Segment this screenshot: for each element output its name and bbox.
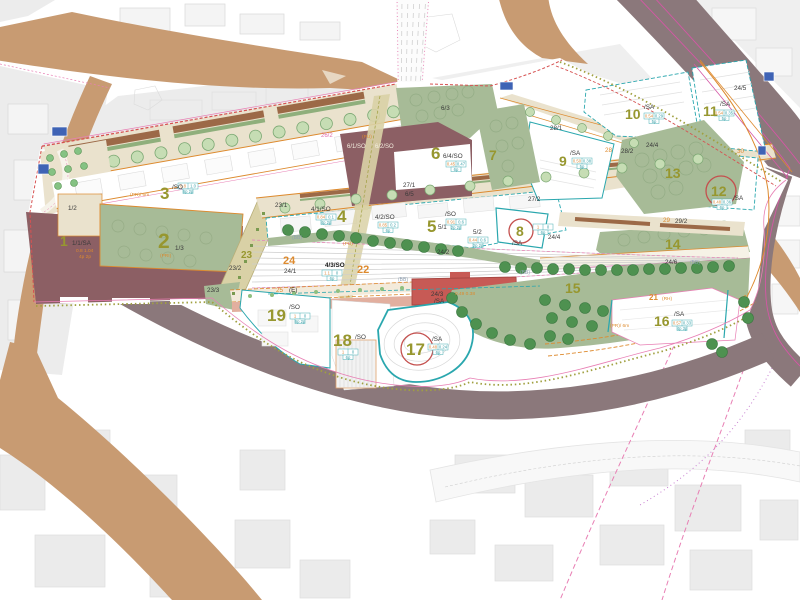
map-label: 4/1/SO (311, 206, 331, 213)
map-label: 27/2 (528, 196, 541, 203)
tree-icon (580, 265, 591, 276)
svg-text:0.50: 0.50 (573, 159, 582, 164)
map-label: 30 (737, 148, 745, 155)
svg-text:4p 2p: 4p 2p (321, 220, 332, 225)
map-label: 26/2 (321, 133, 333, 139)
tree-icon (75, 148, 82, 155)
tree-icon (548, 264, 559, 275)
tree-icon (547, 313, 558, 324)
map-label: (PR)/ 6m (130, 192, 149, 198)
tree-icon (49, 169, 56, 176)
tree-icon (628, 265, 639, 276)
map-label: 4 (337, 207, 347, 226)
tree-icon (503, 176, 513, 186)
svg-text:0.2: 0.2 (390, 223, 396, 228)
map-label: 4p 2p (79, 254, 91, 260)
tree-icon (545, 331, 556, 342)
map-label: (BB) (690, 260, 700, 266)
tree-icon (317, 229, 328, 240)
tree-icon (540, 295, 551, 306)
map-label: 8 (516, 223, 524, 239)
map-label: (PU) (362, 134, 372, 140)
tree-icon (270, 293, 274, 297)
tree-icon (707, 339, 718, 350)
svg-text:6p: 6p (330, 276, 335, 281)
svg-text:0.33: 0.33 (683, 321, 692, 326)
map-label: 13 (665, 165, 681, 181)
svg-text:0.48: 0.48 (713, 200, 722, 205)
map-label: /SO (289, 304, 300, 311)
map-label: 4/2/SO (375, 214, 395, 221)
tree-icon (525, 339, 536, 350)
tree-icon (283, 225, 294, 236)
parcel-2-green (100, 204, 243, 272)
tree-icon (630, 139, 639, 148)
map-label: 1/2 (68, 205, 77, 212)
map-label: 24 (283, 255, 296, 267)
map-label: 24/2 (437, 249, 450, 256)
svg-text:6p: 6p (436, 350, 441, 355)
map-label: (PR)/ 6m (610, 323, 629, 329)
tree-icon (655, 159, 665, 169)
map-label: (BB) (520, 270, 530, 276)
map-label: /SA (733, 195, 744, 202)
map-label: /SA (720, 101, 731, 108)
svg-text:2p 2p: 2p 2p (451, 225, 462, 230)
svg-text:0.6: 0.6 (458, 220, 464, 225)
svg-text:0.85: 0.85 (379, 223, 388, 228)
tree-icon (232, 292, 235, 295)
map-label: 22 (357, 264, 369, 276)
tree-icon (400, 286, 404, 290)
map-label: /SO (355, 334, 366, 341)
svg-text:0.38: 0.38 (583, 159, 592, 164)
tree-icon (238, 276, 241, 279)
svg-text:6p: 6p (541, 230, 546, 235)
svg-text:0.36: 0.36 (723, 200, 732, 205)
map-label: 18 (333, 331, 352, 350)
map-label: (RH) (662, 296, 673, 302)
tree-icon (336, 289, 340, 293)
tree-icon (47, 155, 54, 162)
map-label: 27/1 (403, 182, 416, 189)
map-label: (PU) (343, 241, 353, 247)
tree-icon (419, 242, 430, 253)
svg-text:0.47: 0.47 (457, 162, 466, 167)
svg-text:0.44: 0.44 (469, 238, 478, 243)
tree-icon (425, 185, 435, 195)
tree-icon (256, 228, 259, 231)
map-label: 0.49 0.38 (455, 291, 475, 297)
tree-icon (61, 151, 68, 158)
map-label: 29 (663, 217, 671, 224)
tree-icon (81, 163, 88, 170)
map-label: 24/4 (548, 234, 561, 241)
map-label: /SA (432, 336, 443, 343)
map-label: 6/3 (441, 105, 450, 112)
tree-icon (358, 288, 362, 292)
tree-icon (587, 321, 598, 332)
map-label: 10 (625, 106, 641, 122)
tree-icon (612, 265, 623, 276)
master-plan-map: 0.81.06p 2p0.840.14p 2p0.850.26p0.910.62… (0, 0, 800, 600)
map-label: 25 (276, 287, 284, 294)
tree-icon (580, 303, 591, 314)
map-label: 1/1/SA (72, 240, 92, 247)
tree-icon (262, 212, 265, 215)
tree-icon (693, 154, 703, 164)
map-label: (E) (289, 287, 297, 294)
map-label: 24/6 (665, 259, 678, 266)
map-label: 24/5 (734, 85, 747, 92)
tree-icon (500, 262, 511, 273)
tree-icon (65, 166, 72, 173)
svg-text:0.48: 0.48 (429, 345, 438, 350)
map-label: 28 (605, 147, 613, 154)
tree-icon (314, 290, 318, 294)
svg-text:6p: 6p (720, 205, 725, 210)
tree-icon (579, 168, 589, 178)
svg-text:6p: 6p (386, 228, 391, 233)
svg-text:6p 2p: 6p 2p (183, 189, 194, 194)
tree-icon (465, 181, 475, 191)
svg-text:6p: 6p (454, 167, 459, 172)
svg-text:0.45: 0.45 (447, 162, 456, 167)
map-label: 17 (406, 340, 425, 359)
map-label: 28/1 (550, 125, 563, 132)
map-label: 24/3 (431, 291, 444, 298)
map-label: 14 (665, 236, 681, 252)
map-label: 24/1 (284, 268, 297, 275)
tree-icon (55, 183, 62, 190)
tree-icon (708, 262, 719, 273)
tree-icon (71, 180, 78, 187)
svg-text:4p 3p: 4p 3p (677, 326, 688, 331)
map-label: 6/4/SO (443, 153, 463, 160)
tree-icon (250, 244, 253, 247)
svg-text:2p 2p: 2p 2p (473, 243, 484, 248)
map-label: 23/3 (207, 287, 220, 294)
map-label: 2 (158, 230, 170, 253)
tree-icon (567, 317, 578, 328)
svg-text:0.6: 0.6 (480, 238, 486, 243)
tree-icon (617, 163, 627, 173)
svg-text:0.1: 0.1 (328, 215, 334, 220)
map-label: /SO (445, 211, 456, 218)
tree-icon (351, 194, 361, 204)
svg-text:1.1: 1.1 (324, 271, 330, 276)
map-label: 6/1/SO (347, 144, 366, 150)
tree-icon (380, 287, 384, 291)
tree-icon (717, 347, 728, 358)
map-label: 6 (431, 144, 440, 163)
svg-text:0.57: 0.57 (673, 321, 682, 326)
tree-icon (368, 236, 379, 247)
svg-text:5p: 5p (580, 164, 585, 169)
map-label: 15 (565, 280, 581, 296)
map-label: 23/2 (229, 265, 242, 272)
tree-icon (604, 132, 613, 141)
map-label: 3 (160, 184, 169, 203)
tree-icon (743, 313, 754, 324)
map-label: 0.8 1.04 (76, 248, 94, 254)
map-label: 5 (427, 217, 436, 236)
map-label: 7 (489, 147, 497, 163)
tree-icon (560, 300, 571, 311)
map-label: /SO (172, 184, 183, 191)
map-label: (BB) (292, 235, 302, 241)
tree-icon (564, 264, 575, 275)
svg-text:5p: 5p (652, 119, 657, 124)
map-label: 24/4 (646, 142, 659, 149)
svg-text:0.91: 0.91 (447, 220, 456, 225)
tree-icon (471, 319, 482, 330)
tree-icon (596, 265, 607, 276)
svg-text:1.0: 1.0 (190, 184, 196, 189)
map-label: 9 (559, 153, 567, 169)
tree-icon (598, 306, 609, 317)
map-label: (BB) (398, 277, 408, 283)
tree-icon (334, 231, 345, 242)
courtyard-1-2 (58, 194, 102, 236)
svg-text:0.35: 0.35 (725, 111, 734, 116)
svg-text:6p: 6p (346, 355, 351, 360)
map-label: 29/2 (675, 218, 688, 225)
svg-text:0.84: 0.84 (317, 215, 326, 220)
map-label: 23 (241, 250, 253, 261)
tree-icon (387, 190, 397, 200)
tree-icon (552, 116, 561, 125)
tree-icon (724, 261, 735, 272)
map-label: 1 (60, 233, 68, 249)
tree-icon (541, 172, 551, 182)
map-label: /SA (644, 104, 655, 111)
tree-icon (402, 240, 413, 251)
tree-icon (532, 263, 543, 274)
tree-icon (563, 334, 574, 345)
map-label: 4/3/SO (325, 262, 345, 269)
tree-icon (739, 297, 750, 308)
tree-icon (487, 328, 498, 339)
map-label: 11 (703, 103, 718, 119)
tree-icon (453, 246, 464, 257)
map-label: /SA (674, 311, 685, 318)
svg-text:0.54: 0.54 (645, 114, 654, 119)
tree-icon (505, 335, 516, 346)
svg-text:0.24: 0.24 (439, 345, 448, 350)
map-label: 16 (654, 313, 670, 329)
map-label: /SA (512, 240, 523, 247)
tree-icon (578, 124, 587, 133)
map-label: 12 (711, 183, 727, 199)
svg-text:6p 2p: 6p 2p (295, 319, 306, 324)
tree-icon (385, 238, 396, 249)
svg-text:0.29: 0.29 (655, 114, 664, 119)
map-label: 21 (649, 293, 658, 302)
map-label: 28/2 (621, 148, 634, 155)
map-label: 5/2 (473, 229, 482, 236)
tree-icon (457, 307, 468, 318)
map-label: 19 (267, 306, 286, 325)
map-label: /SA (434, 298, 445, 305)
tree-icon (526, 108, 535, 117)
map-label: /SA (570, 150, 581, 157)
tree-icon (644, 264, 655, 275)
map-label: 6/2/SO (375, 144, 394, 150)
tree-icon (248, 294, 252, 298)
map-label: 6/5 (405, 191, 414, 198)
svg-text:5p: 5p (722, 116, 727, 121)
map-label: 1/3 (175, 245, 184, 252)
map-label: 23/1 (275, 202, 288, 209)
map-label: 5/1 (438, 224, 447, 231)
map-label: (PRI) (160, 253, 172, 259)
